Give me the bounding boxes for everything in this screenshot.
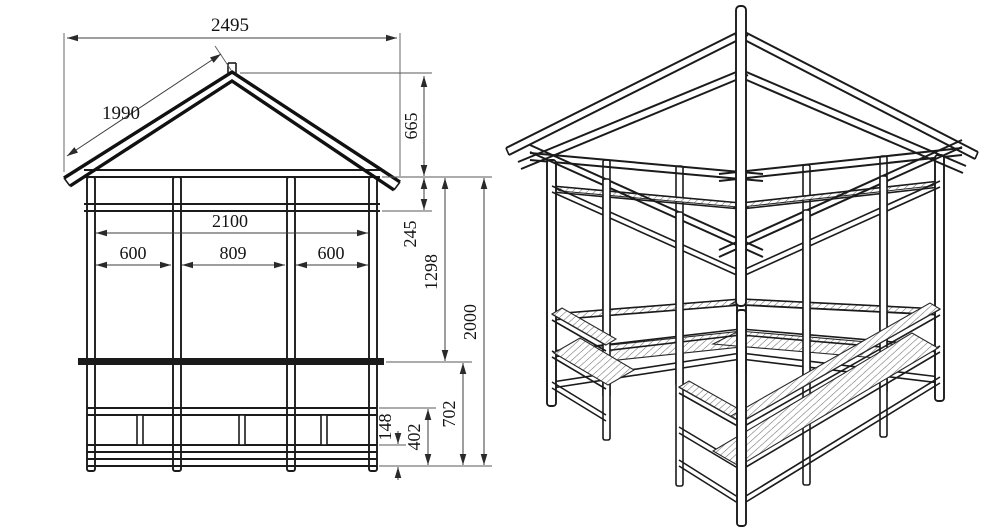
dim-label-bay-center: 809	[220, 243, 247, 263]
dim-label-clear-width: 2100	[212, 211, 248, 231]
back-left-rail-top-hatch	[552, 299, 751, 319]
dim-label-bay-left: 600	[120, 243, 147, 263]
front-corner-post	[737, 310, 746, 526]
technical-drawing-canvas: 2495 1990 665 245 1298 2000 702 402 148 …	[0, 0, 1000, 532]
roof-right-tip-cap	[394, 182, 400, 190]
front-top-plate	[84, 170, 380, 177]
left-rafter-tip-cap	[506, 148, 509, 155]
front-elevation-view: 2495 1990 665 245 1298 2000 702 402 148 …	[64, 15, 492, 480]
right-rafter-tip-cap	[975, 152, 978, 159]
dim-label-frieze-height: 245	[400, 221, 420, 248]
front-baluster-right	[321, 415, 327, 445]
front-mid-rail	[87, 408, 377, 415]
front-post-left	[87, 177, 95, 471]
front-baluster-center	[239, 415, 245, 445]
dim-label-bay-right: 600	[318, 243, 345, 263]
front-lower-rail	[87, 445, 377, 452]
front-bottom-plate	[87, 459, 377, 466]
dim-label-rafter-length: 1990	[102, 103, 140, 124]
front-baluster-left	[137, 415, 143, 445]
dim-label-rail-to-base: 702	[439, 401, 459, 428]
dim-label-roof-span: 2495	[211, 15, 249, 36]
front-left-stud-2	[676, 212, 683, 486]
roof-inner-line	[70, 81, 394, 190]
perspective-view	[506, 6, 978, 526]
front-post-mid-left	[173, 177, 181, 471]
dim-label-plate-to-rail: 1298	[421, 254, 441, 290]
king-post-mast	[736, 6, 746, 306]
dim-label-bottom-rail-height: 148	[375, 414, 395, 441]
front-frieze-rail	[84, 204, 380, 211]
gazebo-frame-drawing: 2495 1990 665 245 1298 2000 702 402 148 …	[0, 0, 1000, 532]
dim-label-roof-rise: 665	[401, 113, 421, 140]
front-left-stud-1	[603, 179, 610, 440]
front-post-mid-right	[287, 177, 295, 471]
roof-left-tip-cap	[64, 178, 70, 186]
front-handrail	[78, 358, 384, 365]
front-right-stud-1	[880, 176, 887, 437]
dim-label-mid-rail-height: 402	[404, 424, 424, 451]
left-corner-post	[547, 160, 556, 406]
roof-outer-line	[64, 72, 400, 182]
front-right-stud-2	[803, 210, 810, 485]
dim-label-wall-height: 2000	[460, 304, 480, 340]
right-corner-post	[935, 155, 944, 401]
